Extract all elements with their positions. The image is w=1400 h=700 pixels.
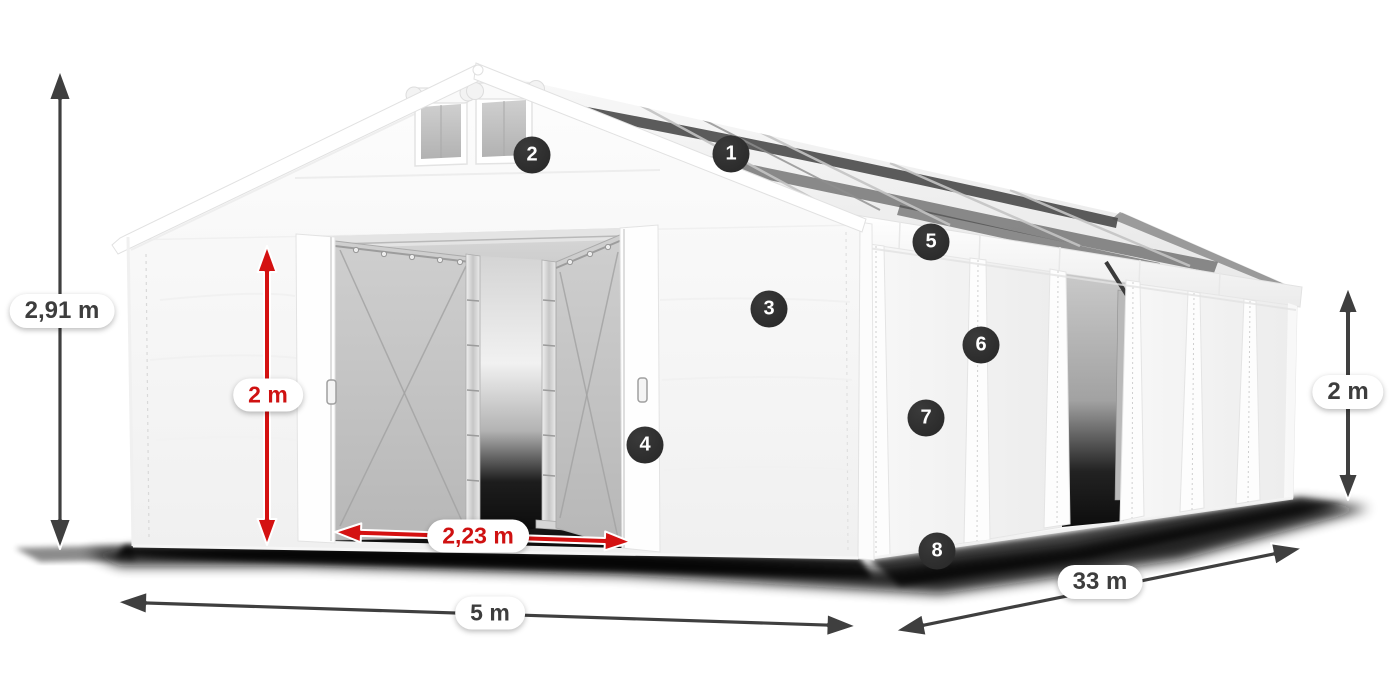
callout-badge-6[interactable]: 6 xyxy=(963,327,1000,364)
callout-badge-4[interactable]: 4 xyxy=(627,427,664,464)
label-tent-width: 5 m xyxy=(455,597,525,630)
callout-badge-5[interactable]: 5 xyxy=(913,224,950,261)
dimension-arrows xyxy=(0,0,1400,700)
label-total-height: 2,91 m xyxy=(10,294,115,328)
callout-badge-8[interactable]: 8 xyxy=(919,533,956,570)
label-door-height: 2 m xyxy=(233,379,303,412)
callout-badge-3[interactable]: 3 xyxy=(751,291,788,328)
callout-badge-7[interactable]: 7 xyxy=(908,400,945,437)
label-side-height: 2 m xyxy=(1312,375,1383,409)
label-door-width: 2,23 m xyxy=(427,520,529,553)
label-tent-length: 33 m xyxy=(1058,565,1143,599)
callout-badge-2[interactable]: 2 xyxy=(514,137,551,174)
callout-badge-1[interactable]: 1 xyxy=(713,136,750,173)
tent-dimension-diagram: 2,91 m 2 m 2,23 m 5 m 33 m 2 m 1 2 3 4 5… xyxy=(0,0,1400,700)
